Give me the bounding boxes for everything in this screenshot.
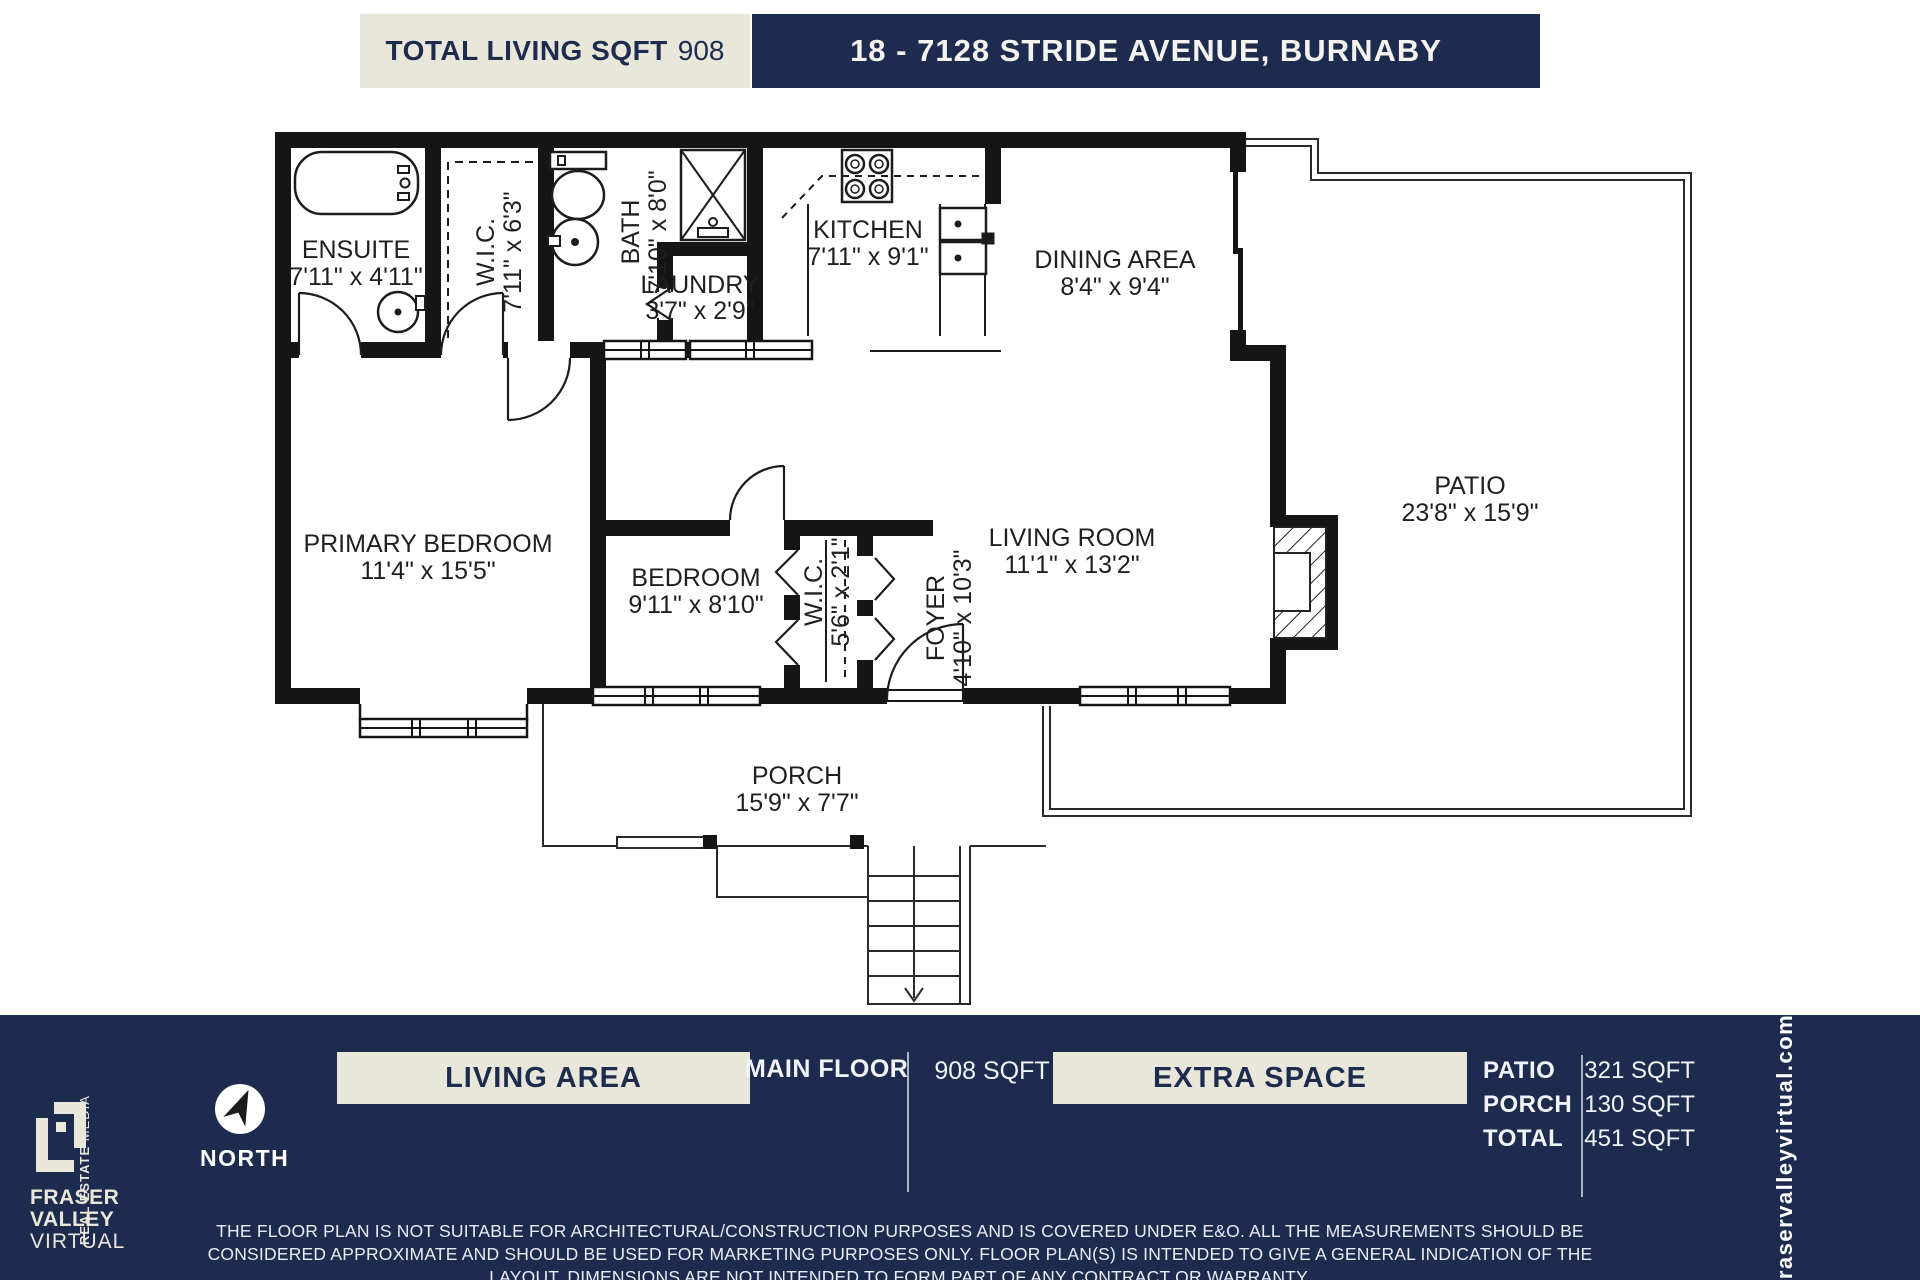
label-primary-bedroom: PRIMARY BEDROOM 11'4" x 15'5" (303, 530, 552, 585)
bedroom-door (730, 466, 784, 520)
svg-text:ENSUITE: ENSUITE (302, 236, 410, 264)
svg-text:BEDROOM: BEDROOM (631, 564, 760, 592)
label-patio: PATIO 23'8" x 15'9" (1401, 472, 1538, 527)
label-wic-primary: W.I.C. 7'11" x 6'3" (472, 191, 527, 312)
living-area-label: LIVING AREA (445, 1062, 642, 1095)
brand-tagline: REAL ESTATE MEDIA (77, 1095, 92, 1245)
patio-outline (1043, 139, 1691, 816)
front-door-threshold (887, 686, 963, 706)
label-kitchen: KITCHEN 7'11" x 9'1" (807, 216, 928, 271)
extra-space-label: EXTRA SPACE (1153, 1062, 1367, 1095)
svg-text:PRIMARY BEDROOM: PRIMARY BEDROOM (303, 530, 552, 558)
fridge-icon (940, 208, 994, 274)
svg-text:23'8" x 15'9": 23'8" x 15'9" (1401, 499, 1538, 527)
toilet-icon (550, 152, 606, 219)
bedroom-window (593, 687, 760, 705)
label-porch: PORCH 15'9" x 7'7" (735, 762, 858, 817)
patio-sliding-door (1233, 172, 1243, 330)
walls (275, 132, 1286, 704)
living-area-box: LIVING AREA (337, 1052, 750, 1104)
label-living: LIVING ROOM 11'1" x 13'2" (989, 524, 1156, 579)
svg-text:FOYER: FOYER (922, 575, 950, 661)
svg-text:7'11" x 9'1": 7'11" x 9'1" (807, 243, 928, 271)
stairs-icon (868, 846, 970, 1004)
svg-text:W.I.C.: W.I.C. (800, 558, 828, 626)
svg-text:W.I.C.: W.I.C. (472, 218, 500, 286)
fireplace-icon (1270, 515, 1338, 650)
svg-text:PORCH: PORCH (752, 762, 842, 790)
svg-text:DINING AREA: DINING AREA (1034, 246, 1195, 274)
label-dining: DINING AREA 8'4" x 9'4" (1034, 246, 1195, 301)
svg-text:KITCHEN: KITCHEN (813, 216, 923, 244)
svg-text:BATH: BATH (617, 200, 645, 265)
sliding-closet-doors (604, 341, 812, 359)
svg-text:4'10" x 10'3": 4'10" x 10'3" (949, 549, 977, 686)
svg-text:11'1" x 13'2": 11'1" x 13'2" (1004, 551, 1139, 579)
label-wic-bedroom: W.I.C. 5'6" x 2'1" (800, 537, 855, 646)
north-indicator: NORTH (200, 1083, 280, 1172)
bath-sink-icon (548, 219, 598, 265)
footer-divider-2 (1581, 1055, 1583, 1197)
main-floor-value: 908 SQFT (912, 1057, 1072, 1086)
bathtub-icon (295, 152, 418, 214)
svg-text:7'11" x 6'3": 7'11" x 6'3" (499, 191, 527, 312)
svg-text:9'11" x 8'10": 9'11" x 8'10" (628, 591, 763, 619)
svg-text:PATIO: PATIO (1434, 472, 1505, 500)
foyer-closet-doors (875, 558, 894, 660)
svg-text:3'7" x 2'9": 3'7" x 2'9" (645, 297, 754, 325)
svg-text:7'11" x 4'11": 7'11" x 4'11" (289, 263, 422, 291)
website-vertical-text: fraservalleyvirtual.com (1772, 1056, 1798, 1280)
north-arrow-icon (214, 1083, 266, 1135)
label-bedroom: BEDROOM 9'11" x 8'10" (628, 564, 763, 619)
footer-band: FRASER VALLEY VIRTUAL REAL ESTATE MEDIA … (0, 1015, 1920, 1280)
main-floor-label: MAIN FLOOR (745, 1055, 895, 1084)
svg-text:15'9" x 7'7": 15'9" x 7'7" (735, 789, 858, 817)
living-room-window (1080, 687, 1230, 705)
extra-space-box: EXTRA SPACE (1053, 1052, 1467, 1104)
footer-divider-1 (907, 1052, 909, 1192)
stat-row-total: TOTAL 451 SQFT (1483, 1125, 1695, 1153)
extra-space-stats: PATIO 321 SQFT PORCH 130 SQFT TOTAL 451 … (1483, 1057, 1695, 1159)
ensuite-sink-icon (378, 292, 425, 332)
north-label: NORTH (200, 1145, 280, 1172)
stat-row-patio: PATIO 321 SQFT (1483, 1057, 1695, 1085)
label-laundry: LAUNDRY 3'7" x 2'9" (640, 271, 759, 325)
stat-row-porch: PORCH 130 SQFT (1483, 1091, 1695, 1119)
svg-text:11'4" x 15'5": 11'4" x 15'5" (360, 557, 495, 585)
svg-text:8'4" x 9'4": 8'4" x 9'4" (1060, 273, 1169, 301)
disclaimer-text: THE FLOOR PLAN IS NOT SUITABLE FOR ARCHI… (190, 1220, 1610, 1280)
svg-text:5'6" x 2'1": 5'6" x 2'1" (827, 537, 855, 646)
svg-text:LAUNDRY: LAUNDRY (640, 271, 759, 299)
primary-bedroom-door (508, 358, 570, 420)
label-foyer: FOYER 4'10" x 10'3" (922, 549, 977, 686)
floorplan-page: TOTAL LIVING SQFT 908 18 - 7128 STRIDE A… (0, 0, 1920, 1280)
bay-window (360, 704, 527, 737)
shower-icon (681, 150, 745, 240)
label-ensuite: ENSUITE 7'11" x 4'11" (289, 236, 422, 291)
svg-text:LIVING ROOM: LIVING ROOM (989, 524, 1156, 552)
